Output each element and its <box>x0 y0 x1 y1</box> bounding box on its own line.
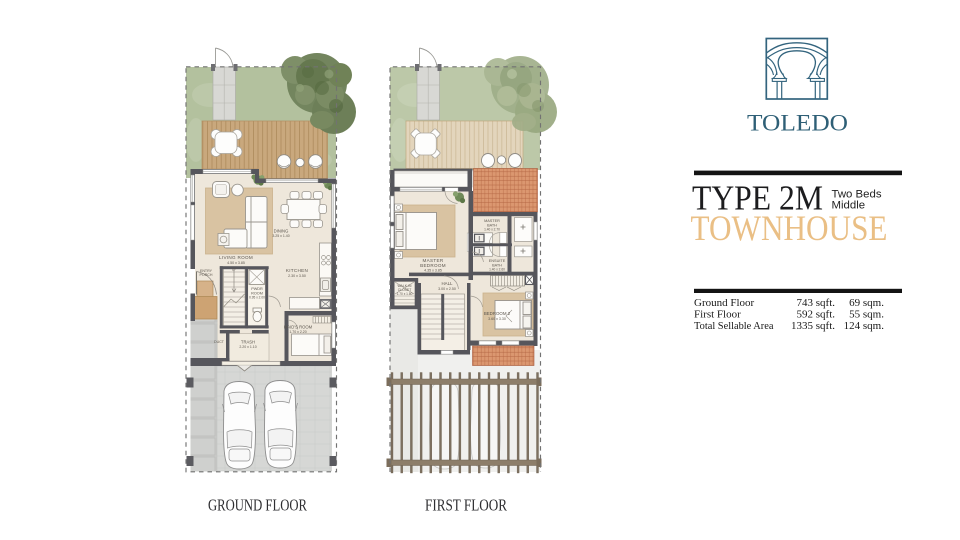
svg-text:PORCH: PORCH <box>200 273 213 277</box>
svg-text:2.30 x 3.50: 2.30 x 3.50 <box>288 274 306 278</box>
svg-text:DINING: DINING <box>274 229 289 234</box>
svg-text:3.00 x 2.50: 3.00 x 2.50 <box>438 287 456 291</box>
svg-text:Total Sellable Area: Total Sellable Area <box>694 321 774 332</box>
svg-text:1335 sqft.: 1335 sqft. <box>791 320 835 332</box>
svg-text:1.70 x 2.20: 1.70 x 2.20 <box>289 330 306 334</box>
svg-text:592 sqft.: 592 sqft. <box>797 309 836 321</box>
svg-text:KITCHEN: KITCHEN <box>286 268 308 273</box>
svg-text:MASTER: MASTER <box>484 219 500 223</box>
svg-text:TOLEDO: TOLEDO <box>747 111 848 136</box>
svg-text:DUCT: DUCT <box>214 340 225 344</box>
svg-text:743 sqft.: 743 sqft. <box>797 297 836 309</box>
svg-text:1.40 x 2.70: 1.40 x 2.70 <box>484 228 500 232</box>
svg-text:PWDR: PWDR <box>251 287 263 291</box>
svg-text:TOWNHOUSE: TOWNHOUSE <box>691 208 888 248</box>
svg-text:MAID'S ROOM: MAID'S ROOM <box>284 325 313 330</box>
svg-text:2.20 x 1.10: 2.20 x 1.10 <box>239 345 256 349</box>
svg-text:1.70 x 1.80: 1.70 x 1.80 <box>397 292 413 296</box>
svg-text:3.25 x 1.40: 3.25 x 1.40 <box>272 234 289 238</box>
svg-text:First Floor: First Floor <box>694 309 741 321</box>
svg-text:4.35 x 3.85: 4.35 x 3.85 <box>424 269 442 273</box>
svg-text:UP: UP <box>232 268 236 272</box>
svg-text:4.50 x 3.85: 4.50 x 3.85 <box>227 261 245 265</box>
svg-text:69 sqm.: 69 sqm. <box>849 297 884 309</box>
svg-text:0.95 x 2.00: 0.95 x 2.00 <box>249 296 265 300</box>
svg-text:3.60 x 3.30: 3.60 x 3.30 <box>488 317 506 321</box>
svg-text:BEDROOM 2: BEDROOM 2 <box>484 311 511 316</box>
svg-text:55 sqm.: 55 sqm. <box>849 309 884 321</box>
svg-text:FIRST FLOOR: FIRST FLOOR <box>425 496 508 515</box>
svg-text:Ground Floor: Ground Floor <box>694 297 755 309</box>
svg-text:GROUND FLOOR: GROUND FLOOR <box>208 496 307 515</box>
svg-text:124 sqm.: 124 sqm. <box>844 320 885 332</box>
svg-text:1.40 x 2.60: 1.40 x 2.60 <box>489 268 505 272</box>
svg-text:BEDROOM: BEDROOM <box>420 263 446 268</box>
svg-text:HALL: HALL <box>442 281 454 286</box>
svg-text:LIVING ROOM: LIVING ROOM <box>219 255 253 260</box>
svg-text:ENSUITE: ENSUITE <box>489 259 506 263</box>
svg-text:TRASH: TRASH <box>241 340 255 345</box>
